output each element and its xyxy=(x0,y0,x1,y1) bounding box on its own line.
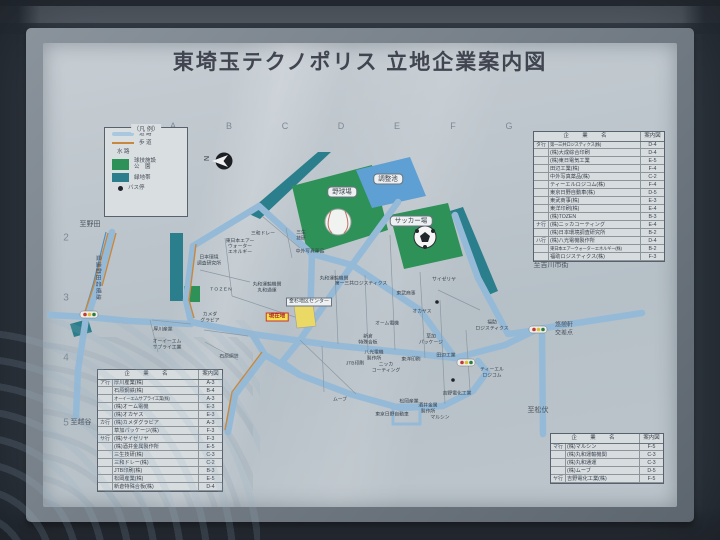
sign-face xyxy=(43,43,677,507)
sign-frame xyxy=(26,28,694,522)
photo-background: 東埼玉テクノポリス 立地企業案内図 xyxy=(0,0,720,540)
